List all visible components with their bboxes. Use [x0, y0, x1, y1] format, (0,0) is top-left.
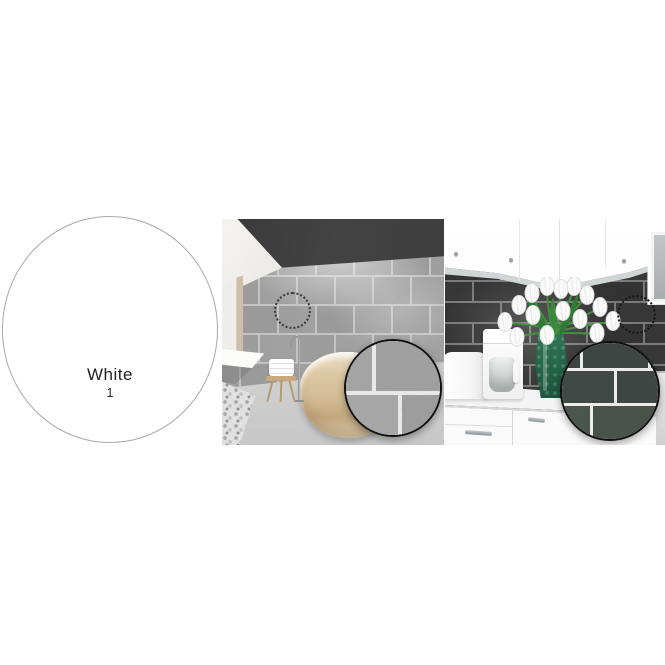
tile-closeup-magnifier[interactable]	[560, 341, 660, 441]
cabinet-door-seam	[519, 219, 520, 281]
cabinet-knob	[509, 258, 513, 262]
swatch-color-name: White	[3, 365, 217, 385]
kitchen-scene-photo[interactable]	[445, 219, 665, 445]
dotted-selection-circle	[617, 295, 656, 334]
cabinet-knob	[622, 259, 626, 263]
towel-stack	[269, 359, 294, 376]
tile-closeup-magnifier[interactable]	[344, 339, 442, 437]
color-swatch-circle[interactable]: White 1	[2, 216, 218, 443]
freestanding-faucet	[298, 340, 300, 401]
swatch-color-number: 1	[3, 386, 217, 400]
cabinet-knob	[454, 252, 458, 256]
cabinet-door-seam	[605, 219, 606, 267]
bathroom-scene-photo[interactable]	[222, 219, 444, 445]
magnified-dark-subway-tiles	[562, 343, 658, 439]
glass-cabinet-pane	[651, 232, 665, 302]
swatch-label: White 1	[3, 365, 217, 400]
cabinet-corner-seam	[559, 219, 560, 285]
magnified-gray-tiles	[346, 341, 440, 435]
faucet-spout	[290, 336, 302, 347]
dotted-selection-circle	[274, 292, 311, 329]
product-gallery: White 1	[0, 0, 665, 665]
drawer-seam	[512, 409, 513, 445]
